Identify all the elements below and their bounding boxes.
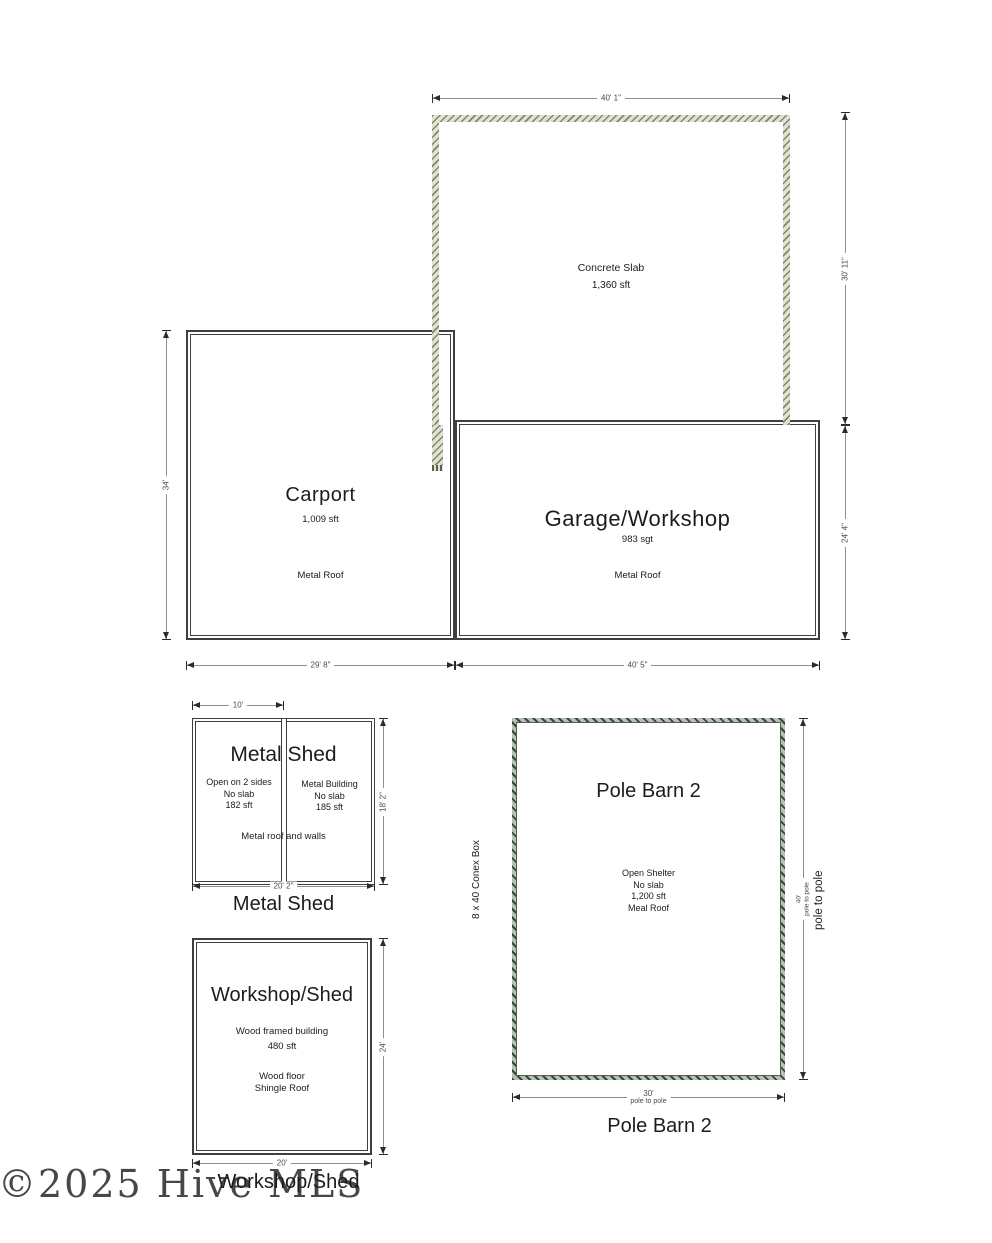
metal-shed-right-unit: Metal Building No slab 185 sft	[287, 779, 372, 814]
workshop-shed-title: Workshop/Shed	[194, 984, 370, 1007]
dim-tick	[784, 1093, 785, 1102]
dim-arrow	[163, 331, 169, 338]
dim-tick	[799, 1079, 808, 1080]
metal-shed-left-line: No slab	[195, 789, 283, 801]
dim-label: 40' 5"	[624, 661, 652, 670]
dim-label-sub: pole to pole	[803, 882, 811, 916]
carport-title: Carport	[188, 484, 453, 507]
dim-arrow	[380, 1147, 386, 1154]
concrete-slab-edge-strip	[432, 425, 443, 471]
dim-metal-shed-top: 10'	[192, 699, 284, 711]
dim-arrow	[456, 662, 463, 668]
workshop-shed-line: 480 sft	[194, 1041, 370, 1052]
dim-label: 40'pole to pole	[796, 878, 811, 920]
pole-barn-info: Open Shelter No slab 1,200 sft Meal Roof	[516, 868, 781, 914]
workshop-shed-line: Wood floor	[194, 1071, 370, 1082]
dim-pole-barn-bottom: 30'pole to pole	[512, 1091, 785, 1103]
dim-garage-height: 24' 4"	[839, 425, 851, 640]
dim-arrow	[380, 719, 386, 726]
metal-shed-right-line: Metal Building	[287, 779, 372, 791]
garage-workshop-title: Garage/Workshop	[457, 506, 818, 532]
dim-arrow	[163, 632, 169, 639]
dim-arrow	[187, 662, 194, 668]
dim-garage-width: 40' 5"	[455, 659, 820, 671]
dim-label: 20' 2"	[270, 882, 298, 891]
dim-label-value: 30'	[630, 1089, 666, 1098]
dim-tick	[162, 639, 171, 640]
workshop-shed-outline: Workshop/Shed Wood framed building 480 s…	[192, 938, 372, 1155]
dim-label: 24'	[379, 1037, 388, 1055]
dim-arrow	[812, 662, 819, 668]
garage-workshop-roof: Metal Roof	[457, 570, 818, 581]
dim-tick	[283, 701, 284, 710]
dim-arrow	[433, 95, 440, 101]
dim-arrow	[447, 662, 454, 668]
carport-outline: Carport 1,009 sft Metal Roof	[186, 330, 455, 640]
dim-label: 30'pole to pole	[626, 1089, 670, 1105]
dim-label: 10'	[229, 701, 247, 710]
pole-barn-caption: Pole Barn 2	[512, 1115, 807, 1138]
dim-tick	[819, 661, 820, 670]
workshop-shed-caption: Workshop/Shed	[192, 1171, 385, 1194]
dim-slab-width: 40' 1"	[432, 92, 790, 104]
dim-arrow	[276, 702, 283, 708]
dim-arrow	[782, 95, 789, 101]
pole-to-pole-side-label: pole to pole	[813, 842, 825, 958]
dim-metal-shed-bottom: 20' 2"	[192, 880, 375, 892]
dim-arrow	[364, 1160, 371, 1166]
metal-shed-right-line: 185 sft	[287, 802, 372, 814]
pole-barn-line: Open Shelter	[516, 868, 781, 880]
dim-arrow	[380, 939, 386, 946]
dim-tick	[841, 639, 850, 640]
dim-tick	[379, 1154, 388, 1155]
dim-label-value: 40'	[796, 882, 804, 916]
metal-shed-left-line: Open on 2 sides	[195, 777, 283, 789]
dim-arrow	[777, 1094, 784, 1100]
dim-arrow	[193, 883, 200, 889]
dim-arrow	[800, 719, 806, 726]
concrete-slab-edge-cap	[432, 465, 443, 471]
carport-area: 1,009 sft	[188, 514, 453, 525]
dim-metal-shed-right: 18' 2"	[377, 718, 389, 885]
dim-tick	[374, 882, 375, 891]
pole-barn-line: 1,200 sft	[516, 891, 781, 903]
metal-shed-title: Metal Shed	[193, 743, 374, 767]
dim-tick	[371, 1159, 372, 1168]
dim-label: 24' 4"	[841, 519, 850, 547]
concrete-slab-area: 1,360 sft	[439, 280, 783, 291]
dim-arrow	[367, 883, 374, 889]
metal-shed-note: Metal roof and walls	[193, 831, 374, 842]
dim-arrow	[193, 702, 200, 708]
dim-tick	[379, 884, 388, 885]
dim-slab-height: 30' 11"	[839, 112, 851, 425]
dim-label: 30' 11"	[841, 253, 850, 285]
dim-pole-barn-right: 40'pole to pole	[797, 718, 809, 1080]
carport-roof: Metal Roof	[188, 570, 453, 581]
pole-barn-title: Pole Barn 2	[516, 780, 781, 803]
floor-plan: ©2025 Hive MLS Carport 1,009 sft Metal R…	[0, 0, 992, 1243]
garage-workshop-outline: Garage/Workshop 983 sgt Metal Roof	[455, 420, 820, 640]
dim-carport-width: 29' 8"	[186, 659, 455, 671]
dim-label: 18' 2"	[379, 788, 388, 816]
workshop-shed-line: Wood framed building	[194, 1026, 370, 1037]
dim-arrow	[842, 632, 848, 639]
metal-shed-left-unit: Open on 2 sides No slab 182 sft	[195, 777, 283, 812]
conex-box-label: 8 x 40 Conex Box	[471, 820, 482, 940]
metal-shed-left-line: 182 sft	[195, 800, 283, 812]
metal-shed-outline: Metal Shed Open on 2 sides No slab 182 s…	[192, 718, 375, 885]
dim-arrow	[513, 1094, 520, 1100]
metal-shed-right-line: No slab	[287, 791, 372, 803]
dim-label: 29' 8"	[307, 661, 335, 670]
dim-arrow	[842, 417, 848, 424]
dim-label-sub: pole to pole	[630, 1098, 666, 1105]
concrete-slab-outline: Concrete Slab 1,360 sft	[432, 115, 790, 425]
dim-arrow	[800, 1072, 806, 1079]
garage-workshop-area: 983 sgt	[457, 534, 818, 545]
dim-arrow	[380, 877, 386, 884]
dim-arrow	[842, 113, 848, 120]
dim-arrow	[842, 426, 848, 433]
dim-carport-height: 34'	[160, 330, 172, 640]
metal-shed-caption: Metal Shed	[192, 893, 375, 916]
pole-barn-line: Meal Roof	[516, 903, 781, 915]
workshop-shed-line: Shingle Roof	[194, 1083, 370, 1094]
dim-tick	[789, 94, 790, 103]
concrete-slab-title: Concrete Slab	[439, 262, 783, 274]
dim-label: 34'	[162, 476, 171, 494]
pole-barn-outline: Pole Barn 2 Open Shelter No slab 1,200 s…	[512, 718, 785, 1080]
pole-barn-line: No slab	[516, 880, 781, 892]
dim-label: 40' 1"	[597, 94, 625, 103]
dim-workshop-shed-right: 24'	[377, 938, 389, 1155]
